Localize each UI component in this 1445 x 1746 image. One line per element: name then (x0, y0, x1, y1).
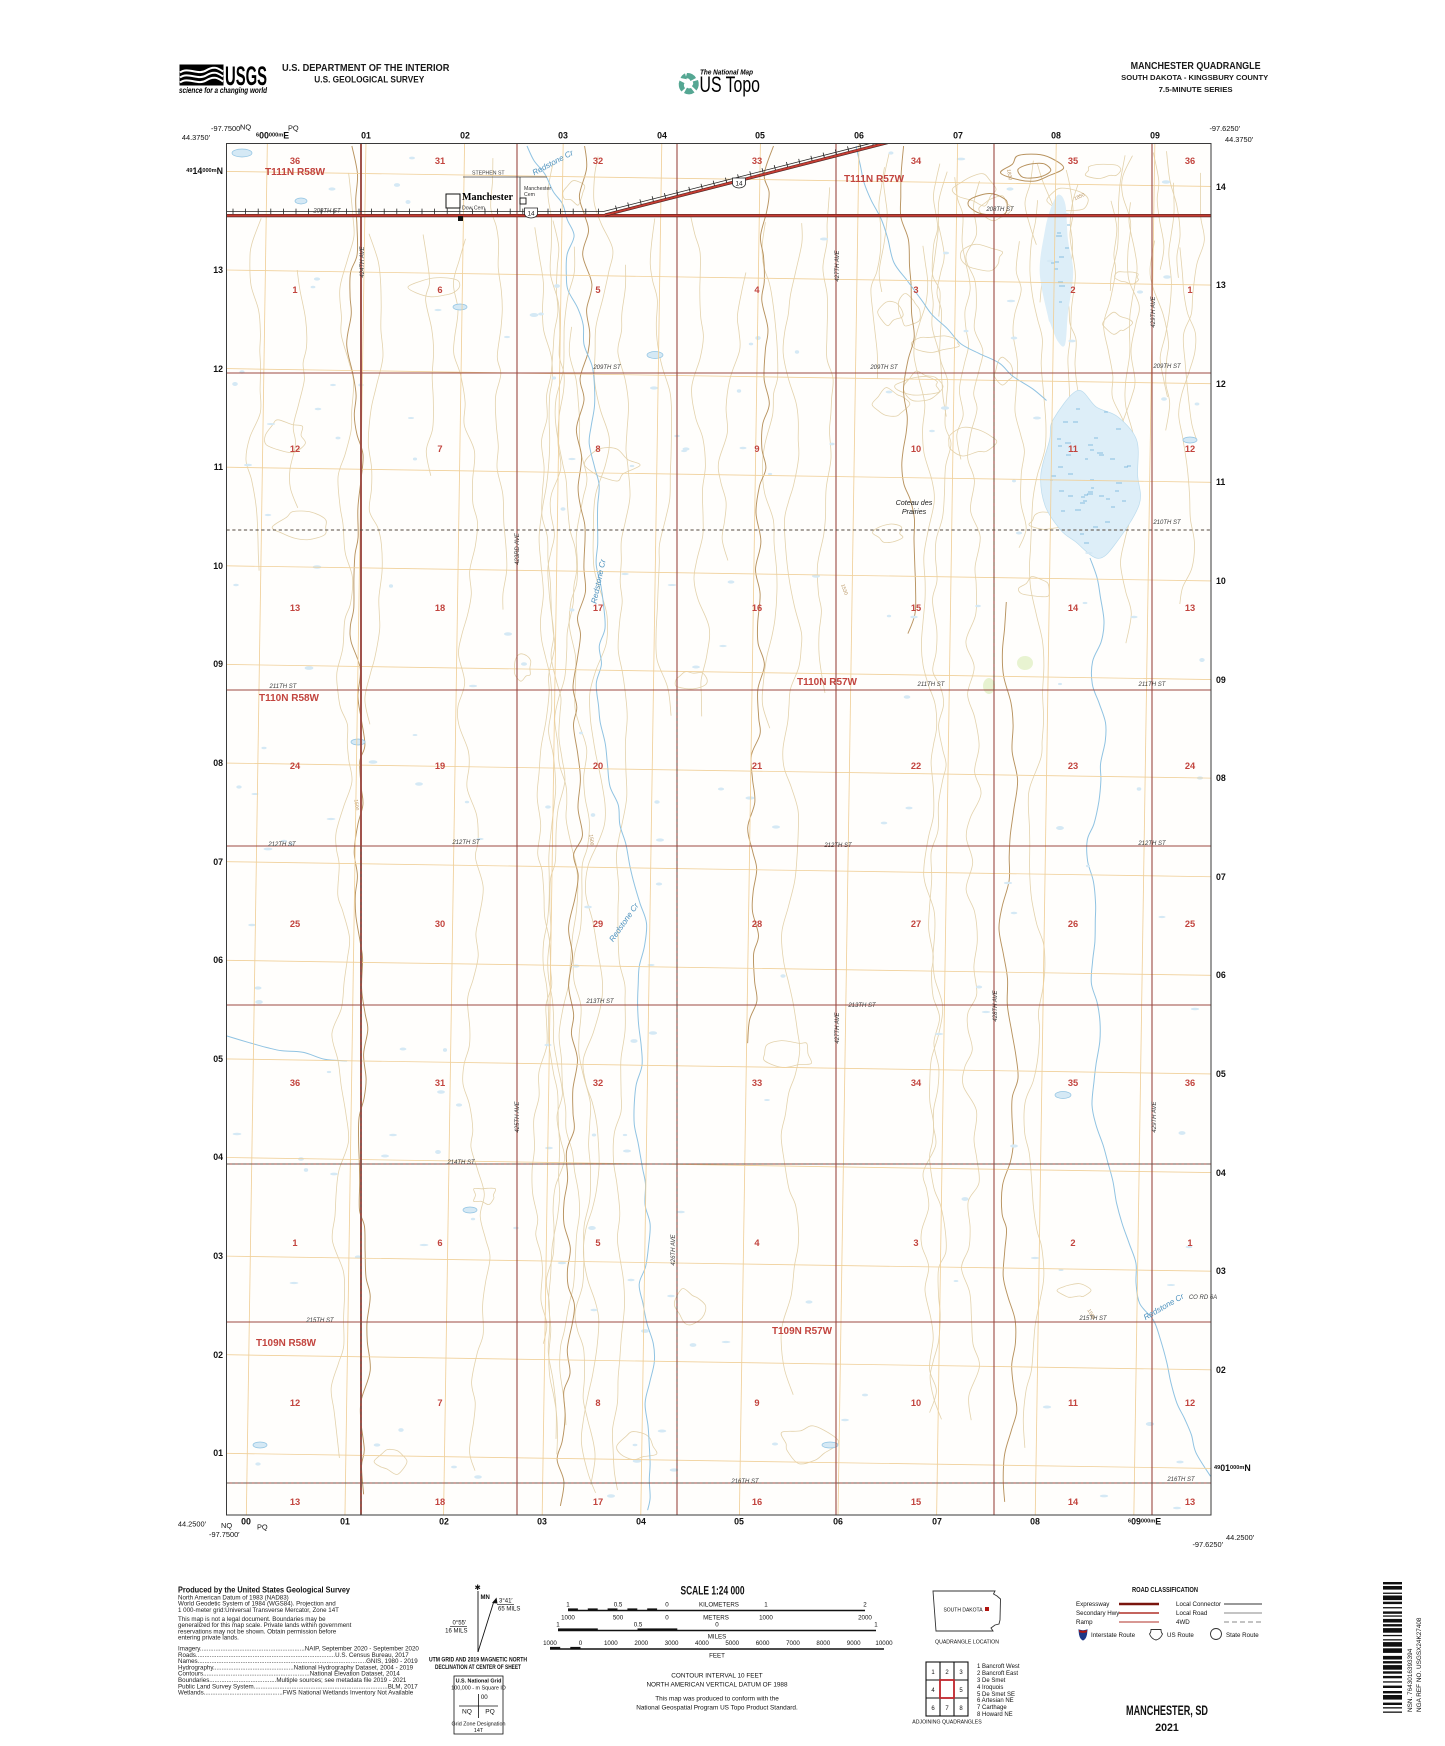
svg-text:05: 05 (734, 1517, 744, 1527)
svg-text:02: 02 (460, 131, 470, 141)
svg-text:1: 1 (566, 1602, 570, 1609)
svg-text:7: 7 (437, 1398, 442, 1408)
svg-text:4000: 4000 (695, 1640, 709, 1647)
svg-text:3°41′: 3°41′ (499, 1599, 513, 1605)
svg-text:Grid Zone Designation: Grid Zone Designation (452, 1722, 506, 1728)
svg-text:424TH AVE: 424TH AVE (360, 245, 366, 277)
svg-text:14: 14 (1216, 182, 1226, 192)
svg-text:T109N R58W: T109N R58W (256, 1338, 316, 1349)
svg-text:9: 9 (754, 444, 759, 454)
svg-text:34: 34 (911, 1078, 922, 1088)
svg-text:State Route: State Route (1226, 1632, 1259, 1639)
svg-text:Expressway: Expressway (1076, 1601, 1110, 1608)
svg-text:11: 11 (214, 462, 223, 472)
svg-text:216TH ST: 216TH ST (730, 1479, 760, 1485)
svg-text:17: 17 (593, 1497, 603, 1507)
svg-text:✱: ✱ (475, 1583, 482, 1592)
svg-text:212TH ST: 212TH ST (267, 842, 297, 848)
svg-text:02: 02 (439, 1517, 449, 1527)
svg-text:T110N R58W: T110N R58W (259, 693, 319, 704)
svg-text:04: 04 (1216, 1168, 1226, 1178)
svg-text:SCALE 1:24 000: SCALE 1:24 000 (681, 1584, 745, 1598)
svg-text:-97.6250′: -97.6250′ (1192, 1540, 1223, 1549)
svg-text:211TH ST: 211TH ST (1138, 682, 1167, 688)
svg-text:24: 24 (290, 761, 301, 771)
svg-text:25: 25 (1185, 919, 1195, 929)
svg-text:NQ: NQ (462, 1709, 472, 1716)
svg-text:U.S. National Grid: U.S. National Grid (456, 1679, 502, 1685)
svg-text:SOUTH DAKOTA - KINGSBURY COUNT: SOUTH DAKOTA - KINGSBURY COUNTY (1121, 73, 1268, 82)
svg-text:44.3750′: 44.3750′ (1225, 135, 1254, 144)
svg-text:4: 4 (754, 1238, 760, 1248)
svg-text:03: 03 (537, 1517, 547, 1527)
svg-text:23: 23 (1068, 761, 1078, 771)
svg-text:07: 07 (932, 1517, 942, 1527)
svg-text:8 Howard NE: 8 Howard NE (977, 1712, 1013, 1718)
svg-text:1: 1 (556, 1622, 560, 1629)
svg-text:06: 06 (833, 1517, 843, 1527)
svg-text:MANCHESTER QUADRANGLE: MANCHESTER QUADRANGLE (1131, 61, 1261, 72)
svg-text:8: 8 (595, 444, 600, 454)
svg-text:NORTH AMERICAN VERTICAL DATUM: NORTH AMERICAN VERTICAL DATUM OF 1988 (646, 1682, 788, 1689)
svg-text:12: 12 (1185, 444, 1195, 454)
svg-text:05: 05 (755, 131, 765, 141)
svg-text:MN: MN (481, 1595, 490, 1601)
svg-text:8000: 8000 (816, 1640, 830, 1647)
svg-text:1: 1 (1187, 285, 1192, 295)
svg-text:1: 1 (1187, 1238, 1192, 1248)
svg-text:24: 24 (1185, 761, 1196, 771)
svg-text:This map was produced to confo: This map was produced to conform with th… (655, 1696, 779, 1703)
svg-text:31: 31 (435, 1078, 445, 1088)
svg-text:00: 00 (480, 1694, 488, 1701)
svg-text:44.2500′: 44.2500′ (178, 1520, 207, 1529)
svg-text:428TH AVE: 428TH AVE (993, 989, 999, 1021)
svg-text:12: 12 (1185, 1398, 1195, 1408)
svg-text:1000: 1000 (561, 1615, 575, 1622)
svg-text:7 Carthage: 7 Carthage (977, 1705, 1007, 1711)
svg-text:NQ: NQ (221, 1521, 232, 1530)
svg-text:Produced by the United States: Produced by the United States Geological… (178, 1585, 350, 1595)
svg-text:KILOMETERS: KILOMETERS (699, 1602, 739, 1609)
svg-text:05: 05 (1216, 1069, 1226, 1079)
svg-text:7.5-MINUTE SERIES: 7.5-MINUTE SERIES (1159, 85, 1233, 94)
svg-text:13: 13 (1216, 280, 1226, 290)
svg-text:2000: 2000 (858, 1615, 872, 1622)
svg-text:Interstate Route: Interstate Route (1091, 1632, 1136, 1639)
svg-text:13: 13 (290, 603, 300, 613)
svg-text:T109N R57W: T109N R57W (772, 1326, 832, 1337)
svg-text:11: 11 (1068, 1398, 1078, 1408)
svg-text:4WD: 4WD (1176, 1619, 1190, 1626)
svg-text:500: 500 (613, 1615, 624, 1622)
svg-text:16 MILS: 16 MILS (445, 1629, 467, 1635)
svg-text:1 000-meter grid:Universal Tra: 1 000-meter grid:Universal Transverse Me… (178, 1607, 339, 1614)
svg-text:MANCHESTER, SD: MANCHESTER, SD (1126, 1703, 1208, 1718)
svg-text:PQ: PQ (288, 124, 299, 133)
svg-text:32: 32 (593, 156, 603, 166)
svg-text:1: 1 (292, 1238, 297, 1248)
svg-text:NGA REF NO. USGSX24K27408: NGA REF NO. USGSX24K27408 (1416, 1617, 1423, 1712)
svg-text:05: 05 (213, 1054, 223, 1064)
svg-text:1500: 1500 (588, 834, 595, 846)
svg-text:03: 03 (1216, 1266, 1226, 1276)
svg-text:-97.6250′: -97.6250′ (1209, 124, 1240, 133)
svg-text:36: 36 (1185, 156, 1195, 166)
svg-text:01: 01 (213, 1448, 223, 1458)
svg-text:Manchester: Manchester (462, 191, 513, 203)
svg-text:Prairies: Prairies (902, 507, 927, 516)
svg-text:03: 03 (213, 1251, 223, 1261)
svg-text:08: 08 (1051, 131, 1061, 141)
svg-text:Local Road: Local Road (1176, 1610, 1208, 1617)
svg-text:12: 12 (290, 444, 300, 454)
svg-text:34: 34 (911, 156, 922, 166)
svg-text:5000: 5000 (725, 1640, 739, 1647)
svg-text:212TH ST: 212TH ST (1137, 841, 1167, 847)
svg-text:12: 12 (213, 364, 223, 374)
svg-text:0°55′: 0°55′ (452, 1621, 466, 1627)
svg-text:3: 3 (913, 285, 918, 295)
svg-text:211TH ST: 211TH ST (269, 684, 298, 690)
svg-text:16: 16 (752, 1497, 762, 1507)
svg-text:427TH AVE: 427TH AVE (835, 249, 841, 281)
svg-text:6: 6 (437, 285, 442, 295)
svg-text:6 Artesian NE: 6 Artesian NE (977, 1698, 1014, 1704)
svg-text:2000: 2000 (634, 1640, 648, 1647)
svg-text:212TH ST: 212TH ST (451, 840, 481, 846)
svg-text:2: 2 (863, 1602, 867, 1609)
svg-text:0: 0 (715, 1622, 719, 1629)
svg-text:210TH ST: 210TH ST (1152, 520, 1182, 526)
svg-text:MILES: MILES (708, 1634, 727, 1641)
svg-text:UTM GRID AND 2019 MAGNETIC NOR: UTM GRID AND 2019 MAGNETIC NORTH (429, 1657, 527, 1664)
svg-text:10: 10 (1216, 576, 1226, 586)
svg-text:26: 26 (1068, 919, 1078, 929)
svg-text:423RD AVE: 423RD AVE (515, 532, 521, 565)
svg-text:100,000 - m Square ID: 100,000 - m Square ID (451, 1686, 506, 1692)
svg-text:Cem: Cem (524, 192, 535, 198)
svg-text:65 MILS: 65 MILS (498, 1607, 520, 1613)
svg-text:426TH AVE: 426TH AVE (671, 1233, 677, 1265)
svg-text:29: 29 (593, 919, 603, 929)
svg-text:30: 30 (435, 919, 445, 929)
svg-text:22: 22 (911, 761, 921, 771)
svg-text:CONTOUR INTERVAL 10 FEET: CONTOUR INTERVAL 10 FEET (671, 1673, 762, 1680)
svg-text:08: 08 (1216, 773, 1226, 783)
svg-text:19: 19 (435, 761, 445, 771)
svg-text:14: 14 (1068, 1497, 1079, 1507)
svg-text:28: 28 (752, 919, 762, 929)
svg-text:13: 13 (213, 265, 223, 275)
svg-text:12: 12 (290, 1398, 300, 1408)
svg-text:-97.7500′: -97.7500′ (211, 124, 242, 133)
svg-text:04: 04 (213, 1152, 223, 1162)
svg-text:04: 04 (636, 1517, 646, 1527)
svg-text:27: 27 (911, 919, 921, 929)
svg-text:1: 1 (874, 1622, 878, 1629)
svg-text:METERS: METERS (703, 1615, 729, 1622)
svg-text:0.5: 0.5 (614, 1602, 623, 1609)
svg-text:U.S. GEOLOGICAL SURVEY: U.S. GEOLOGICAL SURVEY (314, 74, 425, 85)
svg-text:21: 21 (752, 761, 762, 771)
svg-text:DECLINATION AT CENTER OF SHEET: DECLINATION AT CENTER OF SHEET (435, 1664, 521, 1671)
svg-text:6: 6 (437, 1238, 442, 1248)
svg-text:18: 18 (435, 603, 445, 613)
svg-text:CO RD 6A: CO RD 6A (1189, 1295, 1217, 1301)
svg-text:NQ: NQ (240, 123, 251, 132)
svg-text:209TH ST: 209TH ST (869, 365, 899, 371)
svg-text:09: 09 (213, 659, 223, 669)
svg-text:212TH ST: 212TH ST (823, 843, 853, 849)
svg-text:429TH AVE: 429TH AVE (1151, 295, 1157, 327)
svg-text:06: 06 (854, 131, 864, 141)
svg-text:10: 10 (911, 444, 921, 454)
svg-text:3: 3 (913, 1238, 918, 1248)
svg-text:07: 07 (1216, 872, 1226, 882)
svg-text:National Geospatial Program US: National Geospatial Program US Topo Prod… (636, 1705, 798, 1712)
svg-text:4: 4 (754, 285, 760, 295)
svg-text:2: 2 (1070, 1238, 1075, 1248)
svg-text:SOUTH DAKOTA: SOUTH DAKOTA (943, 1608, 983, 1614)
svg-text:1000: 1000 (604, 1640, 618, 1647)
svg-text:1000: 1000 (759, 1615, 773, 1622)
svg-text:215TH ST: 215TH ST (305, 1318, 335, 1324)
svg-text:T111N R58W: T111N R58W (265, 167, 325, 178)
svg-text:1 Bancroft West: 1 Bancroft West (977, 1664, 1020, 1670)
svg-text:211TH ST: 211TH ST (917, 682, 946, 688)
svg-text:9000: 9000 (847, 1640, 861, 1647)
svg-text:0: 0 (665, 1602, 669, 1609)
svg-text:FEET: FEET (709, 1653, 725, 1660)
svg-text:Ramp: Ramp (1076, 1619, 1093, 1626)
svg-text:1: 1 (292, 285, 297, 295)
svg-text:US Topo: US Topo (700, 72, 761, 97)
svg-text:02: 02 (1216, 1365, 1226, 1375)
svg-text:T111N R57W: T111N R57W (844, 174, 904, 185)
svg-text:25: 25 (290, 919, 300, 929)
svg-text:6000: 6000 (756, 1640, 770, 1647)
svg-text:36: 36 (290, 156, 300, 166)
svg-text:10000: 10000 (875, 1640, 893, 1647)
svg-text:8: 8 (595, 1398, 600, 1408)
svg-text:10: 10 (213, 561, 223, 571)
svg-text:1000: 1000 (543, 1640, 557, 1647)
svg-text:15: 15 (911, 603, 921, 613)
svg-text:11: 11 (1068, 444, 1078, 454)
svg-text:QUADRANGLE LOCATION: QUADRANGLE LOCATION (935, 1640, 999, 1646)
svg-text:16: 16 (752, 603, 762, 613)
svg-text:T110N R57W: T110N R57W (797, 677, 857, 688)
svg-text:entering private lands.: entering private lands. (178, 1635, 239, 1642)
svg-text:09: 09 (1216, 675, 1226, 685)
svg-text:science for a changing world: science for a changing world (179, 85, 268, 95)
svg-text:209TH ST: 209TH ST (592, 365, 622, 371)
svg-text:14: 14 (735, 180, 743, 187)
svg-text:03: 03 (558, 131, 568, 141)
svg-text:01: 01 (340, 1517, 350, 1527)
svg-text:3000: 3000 (665, 1640, 679, 1647)
svg-text:5: 5 (595, 1238, 600, 1248)
svg-text:0: 0 (579, 1640, 583, 1647)
svg-text:425TH AVE: 425TH AVE (515, 1100, 521, 1132)
svg-text:Local Connector: Local Connector (1176, 1601, 1221, 1608)
svg-text:US Route: US Route (1167, 1632, 1194, 1639)
svg-text:3 De Smet: 3 De Smet (977, 1678, 1006, 1684)
svg-text:U.S. DEPARTMENT OF THE INTERIO: U.S. DEPARTMENT OF THE INTERIOR (282, 63, 450, 74)
svg-text:14: 14 (1068, 603, 1079, 613)
svg-text:ROAD CLASSIFICATION: ROAD CLASSIFICATION (1132, 1585, 1198, 1594)
svg-text:5: 5 (595, 285, 600, 295)
svg-text:09: 09 (1150, 131, 1160, 141)
svg-text:44.2500′: 44.2500′ (1226, 1533, 1255, 1542)
svg-text:STEPHEN ST: STEPHEN ST (472, 171, 505, 177)
svg-text:08: 08 (213, 758, 223, 768)
svg-text:Secondary Hwy: Secondary Hwy (1076, 1610, 1120, 1617)
svg-text:13: 13 (1185, 603, 1195, 613)
svg-text:15: 15 (911, 1497, 921, 1507)
svg-text:208TH ST: 208TH ST (312, 209, 342, 215)
svg-text:12: 12 (1216, 379, 1226, 389)
svg-text:PQ: PQ (257, 1523, 268, 1532)
svg-text:20: 20 (593, 761, 603, 771)
svg-text:216TH ST: 216TH ST (1166, 1477, 1196, 1483)
svg-text:44.3750′: 44.3750′ (182, 133, 211, 142)
svg-text:215TH ST: 215TH ST (1078, 1316, 1108, 1322)
svg-text:9: 9 (754, 1398, 759, 1408)
svg-text:07: 07 (213, 857, 223, 867)
svg-text:214TH ST: 214TH ST (446, 1160, 476, 1166)
svg-text:-97.7500′: -97.7500′ (209, 1530, 240, 1539)
svg-text:13: 13 (290, 1497, 300, 1507)
svg-text:02: 02 (213, 1350, 223, 1360)
svg-text:33: 33 (752, 156, 762, 166)
svg-text:209TH ST: 209TH ST (1152, 364, 1182, 370)
svg-text:208TH ST: 208TH ST (985, 207, 1015, 213)
svg-text:7: 7 (437, 444, 442, 454)
svg-text:NSN. 7643016393394: NSN. 7643016393394 (1407, 1648, 1414, 1712)
svg-text:14: 14 (527, 210, 535, 217)
svg-text:4 Iroquois: 4 Iroquois (977, 1685, 1003, 1691)
svg-text:213TH ST: 213TH ST (585, 999, 615, 1005)
svg-text:08: 08 (1030, 1517, 1040, 1527)
svg-text:33: 33 (752, 1078, 762, 1088)
svg-text:1: 1 (764, 1602, 768, 1609)
svg-text:01: 01 (361, 131, 371, 141)
svg-text:7000: 7000 (786, 1640, 800, 1647)
svg-text:429TH AVE: 429TH AVE (1152, 1100, 1158, 1132)
svg-text:13: 13 (1185, 1497, 1195, 1507)
svg-text:14T: 14T (474, 1728, 484, 1734)
svg-text:427TH AVE: 427TH AVE (835, 1011, 841, 1043)
svg-text:31: 31 (435, 156, 445, 166)
svg-text:06: 06 (213, 955, 223, 965)
svg-text:36: 36 (1185, 1078, 1195, 1088)
svg-text:35: 35 (1068, 1078, 1078, 1088)
svg-text:04: 04 (657, 131, 667, 141)
svg-text:00: 00 (241, 1517, 251, 1527)
svg-text:2021: 2021 (1155, 1722, 1179, 1734)
svg-text:Dow Cem: Dow Cem (462, 206, 485, 212)
svg-text:07: 07 (953, 131, 963, 141)
svg-text:2: 2 (1070, 285, 1075, 295)
svg-text:Coteau des: Coteau des (896, 498, 933, 507)
svg-text:ADJOINING QUADRANGLES: ADJOINING QUADRANGLES (912, 1720, 982, 1726)
svg-text:0.5: 0.5 (634, 1622, 643, 1629)
svg-text:2 Bancroft East: 2 Bancroft East (977, 1671, 1018, 1677)
svg-text:PQ: PQ (485, 1709, 495, 1716)
svg-text:11: 11 (1216, 477, 1225, 487)
svg-text:Wetlands......................: Wetlands................................… (178, 1690, 414, 1697)
svg-text:213TH ST: 213TH ST (847, 1003, 877, 1009)
svg-text:06: 06 (1216, 970, 1226, 980)
svg-text:36: 36 (290, 1078, 300, 1088)
svg-text:0: 0 (665, 1615, 669, 1622)
svg-text:35: 35 (1068, 156, 1078, 166)
svg-text:10: 10 (911, 1398, 921, 1408)
svg-text:18: 18 (435, 1497, 445, 1507)
svg-text:32: 32 (593, 1078, 603, 1088)
